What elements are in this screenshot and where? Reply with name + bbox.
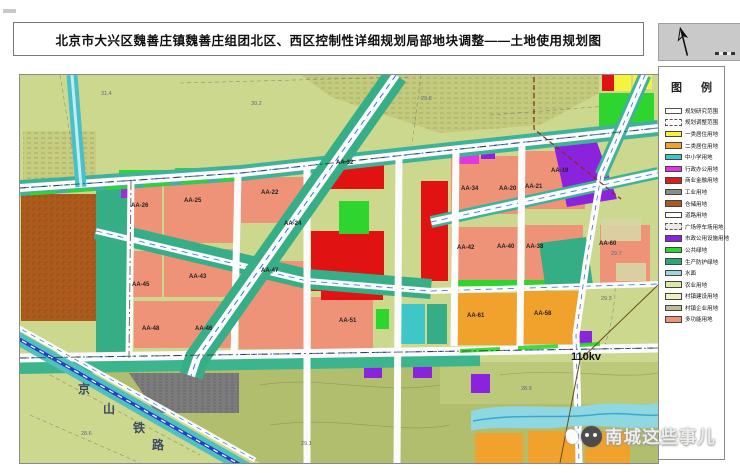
protective-green-west	[96, 189, 128, 358]
legend-swatch	[665, 235, 682, 242]
legend-title: 图 例	[659, 79, 724, 95]
legend-label: 道路用地	[685, 211, 707, 219]
planning-map-page: 北京市大兴区魏善庄镇魏善庄组团北区、西区控制性详细规划局部地块调整——土地使用规…	[0, 0, 740, 473]
legend-row: 仓储用地	[659, 198, 724, 210]
legend-row: 村镇企业用地	[659, 302, 724, 314]
legend-label: 生产防护绿地	[685, 258, 718, 266]
legend-swatch	[665, 316, 682, 323]
legend-label: 公共绿地	[685, 246, 707, 254]
legend-swatch	[665, 177, 682, 184]
legend-swatch	[665, 281, 682, 288]
legend-label: 规划调整范围	[685, 118, 718, 126]
legend-label: 商业金融用地	[685, 176, 718, 184]
north-arrow-box	[658, 23, 740, 61]
warehouse-block	[21, 194, 96, 321]
school-block	[401, 304, 425, 344]
legend-row: 规划调整范围	[659, 117, 724, 129]
legend-row: 规划研究范围	[659, 105, 724, 117]
legend-label: 市政公用设施用地	[685, 234, 729, 242]
legend-swatch	[665, 293, 682, 300]
legend-row: 道路用地	[659, 209, 724, 221]
legend-row: 农业用地	[659, 279, 724, 291]
scale-bar	[715, 52, 735, 55]
legend-swatch	[665, 258, 682, 265]
legend-swatch	[665, 247, 682, 254]
legend-swatch	[665, 189, 682, 196]
legend-label: 工业用地	[685, 188, 707, 196]
page-corner-mark	[3, 9, 16, 13]
legend-label: 二类居住用地	[685, 142, 718, 150]
legend-row: 生产防护绿地	[659, 256, 724, 268]
legend-row: 商业金融用地	[659, 175, 724, 187]
protective-green-center	[427, 304, 447, 344]
legend-label: 多功能用地	[685, 315, 713, 323]
legend-swatch	[665, 200, 682, 207]
watermark-text: 南城这些事儿	[605, 424, 716, 449]
legend-swatch	[665, 154, 682, 161]
legend-label: 行政办公用地	[685, 165, 718, 173]
legend-items: 规划研究范围规划调整范围一类居住用地二类居住用地中小学用地行政办公用地商业金融用…	[659, 105, 724, 325]
watermark-logo-icon	[581, 426, 602, 447]
legend-label: 广场停车场用地	[685, 223, 724, 231]
legend-swatch	[665, 305, 682, 312]
page-title: 北京市大兴区魏善庄镇魏善庄组团北区、西区控制性详细规划局部地块调整——土地使用规…	[55, 30, 601, 49]
legend-swatch	[665, 108, 682, 115]
legend-swatch	[665, 119, 682, 126]
legend-row: 中小学用地	[659, 151, 724, 163]
legend-row: 水面	[659, 267, 724, 279]
legend-row: 工业用地	[659, 186, 724, 198]
legend-label: 一类居住用地	[685, 130, 718, 138]
legend-panel: 图 例 规划研究范围规划调整范围一类居住用地二类居住用地中小学用地行政办公用地商…	[658, 66, 725, 460]
legend-label: 中小学用地	[685, 153, 713, 161]
legend-row: 二类居住用地	[659, 140, 724, 152]
watermark: 南城这些事儿	[566, 424, 716, 449]
legend-swatch	[665, 212, 682, 219]
legend-row: 行政办公用地	[659, 163, 724, 175]
north-arrow-icon	[671, 26, 697, 58]
legend-label: 仓储用地	[685, 200, 707, 208]
legend-swatch	[665, 166, 682, 173]
watermark-hat-icon	[564, 428, 579, 445]
legend-label: 村镇建设用地	[685, 292, 718, 300]
legend-label: 村镇企业用地	[685, 304, 718, 312]
legend-label: 规划研究范围	[685, 107, 718, 115]
legend-label: 水面	[685, 269, 696, 277]
map-canvas	[20, 75, 658, 463]
legend-swatch	[665, 270, 682, 277]
legend-row: 村镇建设用地	[659, 291, 724, 303]
map-title-bar: 北京市大兴区魏善庄镇魏善庄组团北区、西区控制性详细规划局部地块调整——土地使用规…	[13, 22, 644, 56]
legend-row: 市政公用设施用地	[659, 233, 724, 245]
legend-row: 多功能用地	[659, 314, 724, 326]
land-use-map: AA-26 AA-25 AA-22 AA-24 AA-34 AA-20 AA-2…	[19, 74, 659, 464]
legend-swatch	[665, 142, 682, 149]
legend-row: 一类居住用地	[659, 128, 724, 140]
legend-swatch	[665, 223, 682, 230]
legend-swatch	[665, 131, 682, 138]
legend-row: 公共绿地	[659, 244, 724, 256]
legend-label: 农业用地	[685, 281, 707, 289]
legend-row: 广场停车场用地	[659, 221, 724, 233]
